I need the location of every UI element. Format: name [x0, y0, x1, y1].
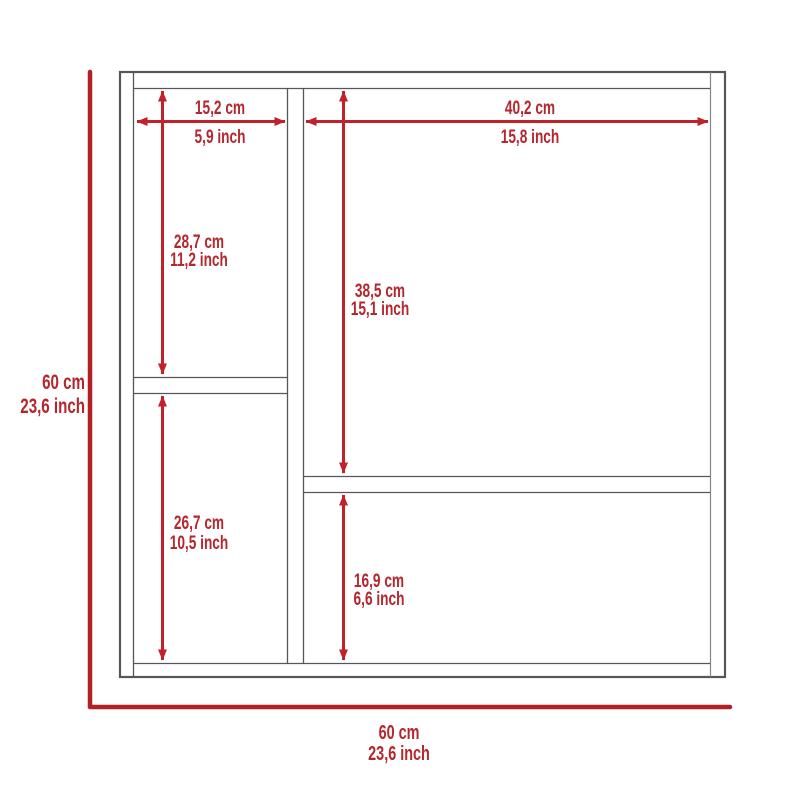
label-left-upper-height-inch: 11,2 inch — [149, 251, 250, 270]
label-overall-width-cm: 60 cm — [349, 723, 450, 743]
label-right-lower-height-inch: 6,6 inch — [329, 590, 430, 609]
overall-extent-line — [90, 72, 730, 707]
label-right-section-width-inch: 15,8 inch — [480, 128, 581, 147]
label-left-section-width-inch: 5,9 inch — [170, 128, 271, 147]
label-right-upper-height-inch: 15,1 inch — [330, 300, 431, 319]
cabinet-line-drawing — [0, 0, 800, 800]
label-overall-height-cm: 60 cm — [0, 372, 85, 393]
label-left-lower-height-inch: 10,5 inch — [149, 534, 250, 553]
label-overall-width-inch: 23,6 inch — [349, 744, 450, 764]
dimension-diagram: 15,2 cm 5,9 inch 40,2 cm 15,8 inch 28,7 … — [0, 0, 800, 800]
label-left-lower-height-cm: 26,7 cm — [149, 514, 250, 533]
label-overall-height-inch: 23,6 inch — [0, 396, 85, 417]
label-left-section-width-cm: 15,2 cm — [170, 99, 271, 118]
label-right-section-width-cm: 40,2 cm — [480, 99, 581, 118]
